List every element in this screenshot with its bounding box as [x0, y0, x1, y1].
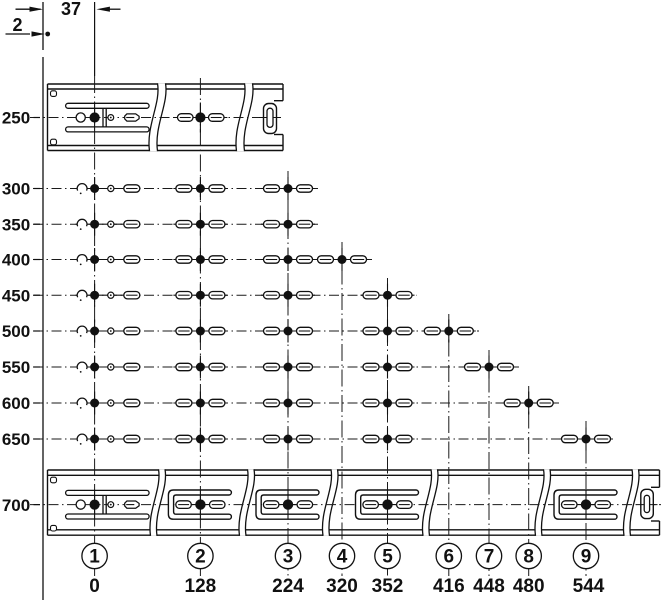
- svg-text:5: 5: [382, 547, 393, 568]
- svg-text:450: 450: [2, 286, 30, 305]
- svg-text:37: 37: [61, 0, 81, 19]
- svg-text:8: 8: [523, 547, 534, 568]
- svg-text:1: 1: [89, 547, 100, 568]
- svg-text:9: 9: [581, 547, 592, 568]
- svg-text:700: 700: [2, 496, 30, 515]
- svg-text:7: 7: [484, 547, 495, 568]
- svg-text:320: 320: [326, 576, 358, 597]
- svg-text:448: 448: [473, 576, 505, 597]
- svg-text:2: 2: [195, 547, 206, 568]
- svg-text:224: 224: [272, 576, 304, 597]
- svg-text:550: 550: [2, 358, 30, 377]
- svg-text:4: 4: [337, 547, 348, 568]
- svg-text:416: 416: [433, 576, 465, 597]
- svg-text:352: 352: [372, 576, 404, 597]
- svg-text:650: 650: [2, 430, 30, 449]
- svg-text:0: 0: [89, 576, 100, 597]
- svg-text:300: 300: [2, 180, 30, 199]
- svg-text:500: 500: [2, 322, 30, 341]
- svg-text:2: 2: [12, 15, 22, 35]
- svg-text:6: 6: [444, 547, 455, 568]
- svg-text:480: 480: [513, 576, 545, 597]
- svg-text:600: 600: [2, 394, 30, 413]
- svg-text:250: 250: [2, 109, 30, 128]
- svg-text:400: 400: [2, 251, 30, 270]
- svg-text:544: 544: [573, 576, 605, 597]
- svg-text:128: 128: [185, 576, 217, 597]
- svg-text:3: 3: [283, 547, 294, 568]
- svg-text:350: 350: [2, 215, 30, 234]
